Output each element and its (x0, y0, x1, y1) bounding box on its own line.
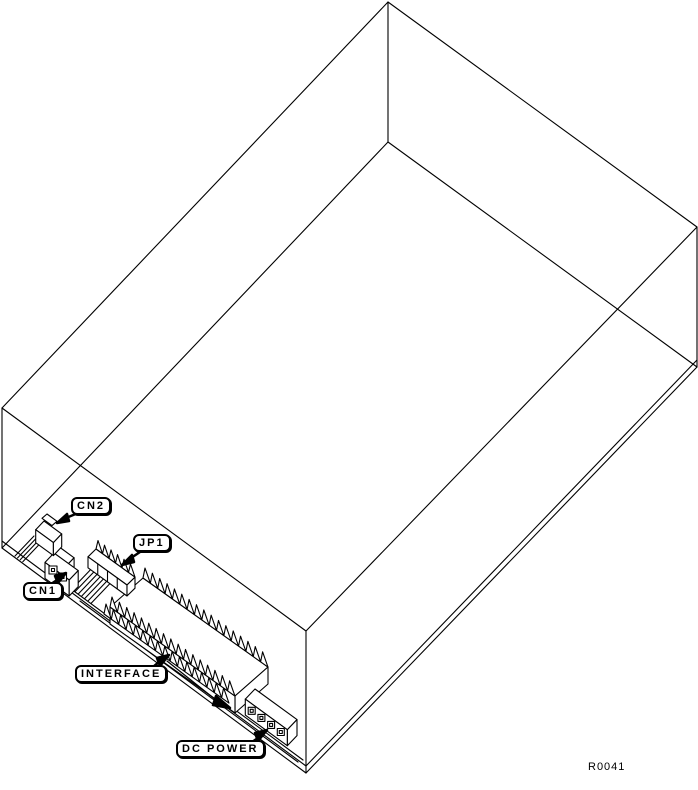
callout-cn1: CN1 (23, 582, 63, 600)
callout-cn2: CN2 (71, 497, 111, 515)
enclosure-outline (2, 2, 697, 773)
cn2-arrowhead (57, 514, 69, 523)
callout-dc-power: DC POWER (176, 740, 265, 758)
callout-interface: INTERFACE (75, 665, 167, 683)
figure-canvas: CN2 JP1 CN1 INTERFACE DC POWER R0041 (0, 0, 698, 790)
cn2-connector-drawing (15, 514, 62, 562)
figure-reference-code: R0041 (588, 761, 625, 773)
callout-jp1: JP1 (133, 534, 171, 552)
